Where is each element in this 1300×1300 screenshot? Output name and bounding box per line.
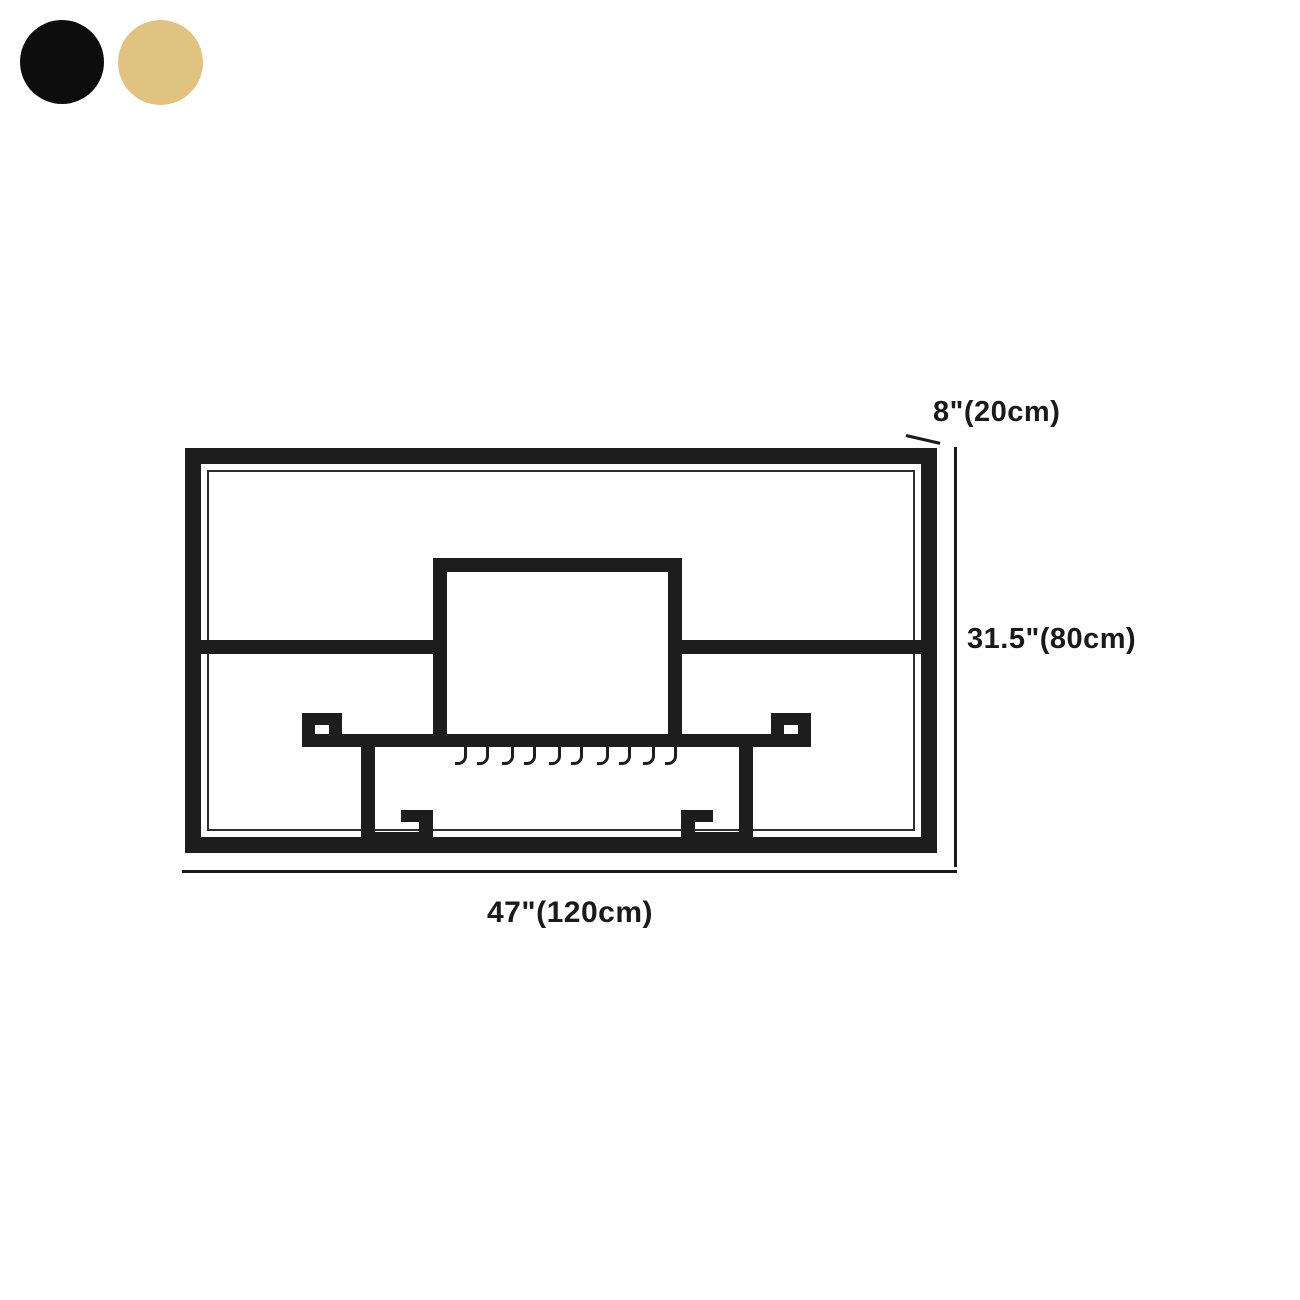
left-foot-tab	[401, 810, 422, 822]
middle-shelf-right	[668, 640, 925, 654]
center-box	[433, 558, 682, 747]
left-leg	[361, 740, 375, 845]
dimension-depth-label: 8"(20cm)	[933, 396, 1060, 429]
middle-shelf-left	[197, 640, 447, 654]
shelf-end-right-tab	[771, 723, 784, 737]
right-leg	[739, 740, 753, 845]
color-swatch-black[interactable]	[20, 20, 104, 104]
height-dimension-line	[954, 447, 957, 867]
dimension-height-label: 31.5"(80cm)	[967, 623, 1136, 656]
product-dimension-diagram: 8"(20cm) 31.5"(80cm) 47"(120cm)	[0, 0, 1300, 1300]
shelf-end-left-tab	[329, 723, 342, 737]
color-swatch-gold[interactable]	[118, 20, 203, 105]
width-dimension-line	[182, 870, 957, 873]
dimension-width-label: 47"(120cm)	[420, 896, 720, 930]
depth-extension-line	[906, 434, 941, 445]
right-foot-tab	[692, 810, 713, 822]
